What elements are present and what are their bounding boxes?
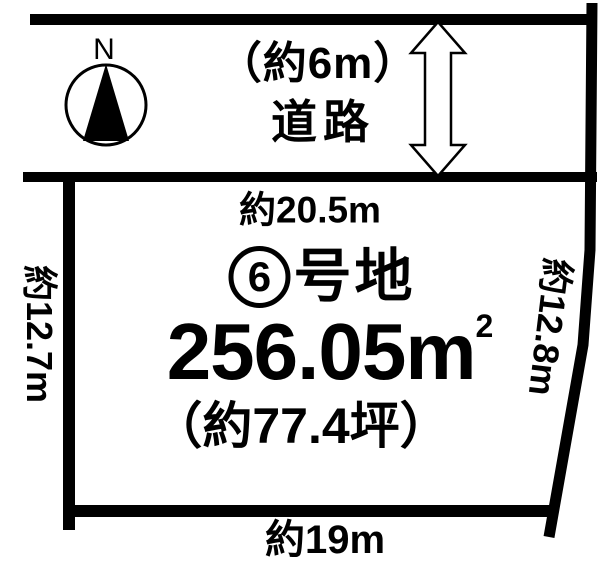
lot-title: 6 号地 (228, 246, 415, 308)
plot-area-label: 256.05m2 (167, 312, 494, 392)
plot-top-dimension: 約20.5m (239, 192, 381, 229)
plot-bottom-dimension: 約19m (265, 520, 385, 560)
road-top-boundary-line (30, 14, 597, 25)
north-compass-icon (66, 64, 146, 145)
lot-number: 6 (248, 256, 271, 298)
area-value: 256.05m (167, 307, 476, 396)
area-exponent: 2 (476, 308, 494, 344)
lot-name-label: 号地 (293, 248, 415, 306)
plot-left-dimension: 約12.7m (21, 265, 57, 403)
plot-left-boundary-line (63, 172, 75, 530)
road-name-label: 道路 (271, 99, 375, 145)
road-bottom-boundary-line (23, 172, 597, 182)
land-plot-diagram: N （約6m） 道路 約20.5m 約12.7m 約12.8m 約19m 6 号… (0, 0, 600, 580)
plot-bottom-boundary-line (63, 505, 557, 517)
road-width-arrow-icon (411, 22, 465, 176)
area-tsubo-label: （約77.4坪） (152, 401, 449, 451)
lot-number-badge: 6 (228, 246, 290, 308)
road-width-label: （約6m） (218, 42, 419, 86)
compass-north-label: N (93, 35, 115, 65)
